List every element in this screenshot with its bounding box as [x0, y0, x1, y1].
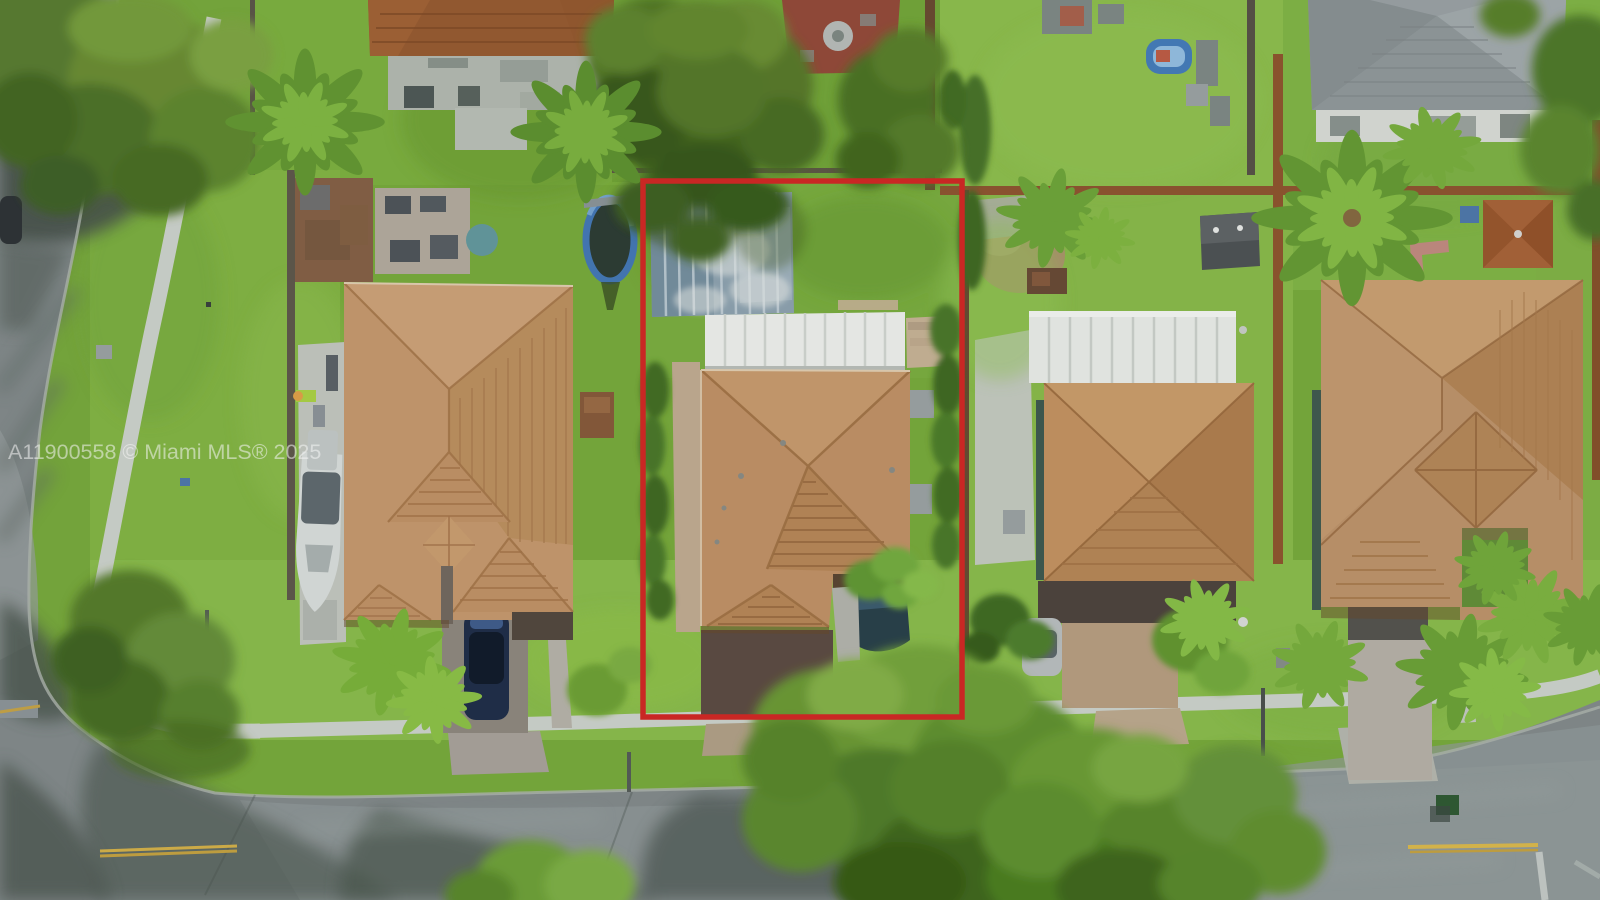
svg-text:A11900558 © Miami MLS® 2025: A11900558 © Miami MLS® 2025 [8, 440, 321, 464]
